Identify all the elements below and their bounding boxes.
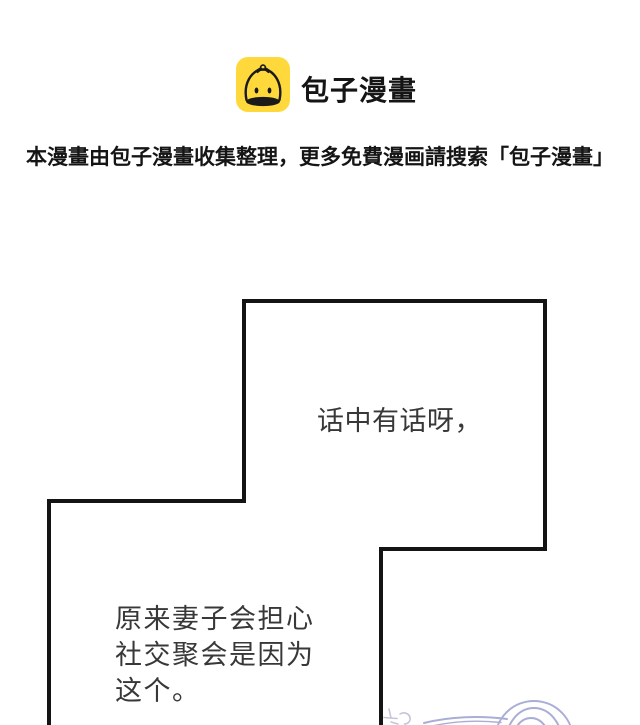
- comic-page: 包子漫畫 本漫畫由包子漫畫收集整理，更多免費漫画請搜索「包子漫畫」 话中有话呀，…: [0, 0, 640, 725]
- dialogue-line: 原来妻子会担心: [115, 601, 315, 637]
- dialogue-line: 这个。: [115, 673, 315, 709]
- panel-borders: [0, 0, 640, 725]
- dialogue-line: 社交聚会是因为: [115, 637, 315, 673]
- sketch-marks: [384, 709, 410, 724]
- dialogue-panel2: 原来妻子会担心 社交聚会是因为 这个。: [115, 601, 315, 709]
- background-art: [384, 701, 573, 725]
- dialogue-panel1: 话中有话呀，: [317, 399, 482, 438]
